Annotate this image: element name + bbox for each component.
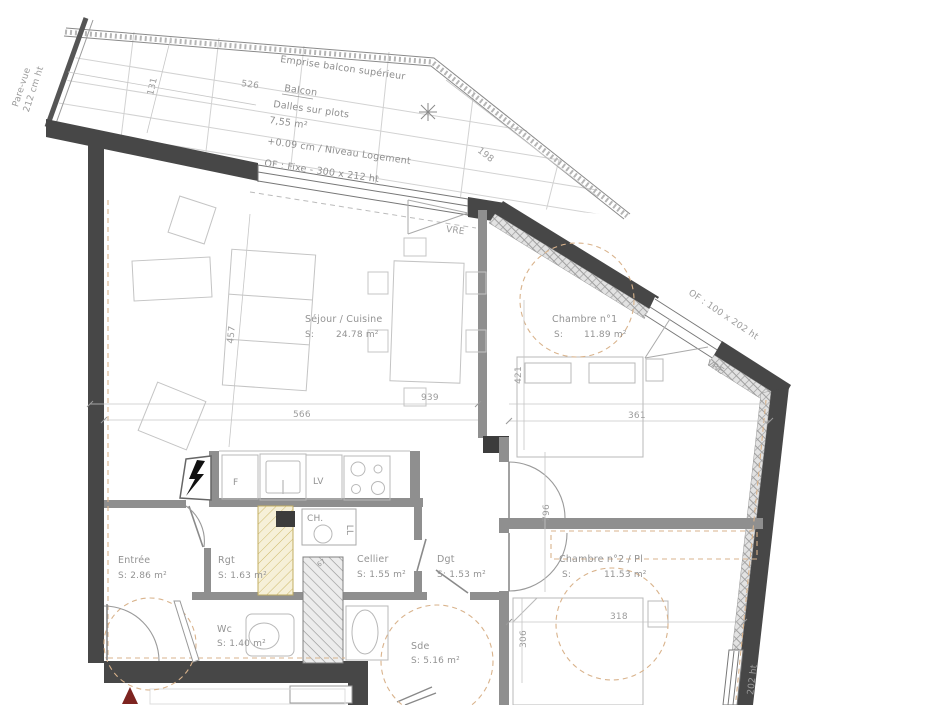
wall-corridor-1 xyxy=(499,437,509,462)
cooktop xyxy=(344,456,390,500)
dining-set xyxy=(368,238,486,406)
dim-306: 306 xyxy=(519,630,529,648)
label-rgt-area: S: 1.63 m² xyxy=(218,571,267,581)
dashed-marks xyxy=(104,200,766,705)
wall-left xyxy=(88,136,104,663)
wall-diagonal-upper xyxy=(495,201,659,310)
wall-cellier-dgt-1 xyxy=(414,507,422,540)
door-chambre1-arc xyxy=(509,462,565,518)
label-sejour-s: S: xyxy=(305,330,314,340)
floor-plan: Emprise balcon supérieur 526 Balcon Dall… xyxy=(0,0,940,705)
label-water-heater: CH. xyxy=(307,514,323,524)
bed-chambre2 xyxy=(513,598,668,705)
dim-318: 318 xyxy=(610,612,628,622)
dim-457: 457 xyxy=(226,325,238,344)
label-entree-area: S: 2.86 m² xyxy=(118,571,167,581)
floor-plan-svg: Emprise balcon supérieur 526 Balcon Dall… xyxy=(0,0,940,705)
shaft-block xyxy=(276,511,295,527)
label-sejour-area: 24.78 m² xyxy=(336,330,379,340)
label-chambre2-name: Chambre n°2 / Pl xyxy=(559,554,643,565)
label-dishwasher: LV xyxy=(313,477,324,487)
wall-corridor-2 xyxy=(499,518,509,533)
label-sde-name: Sde xyxy=(411,641,430,652)
exterior-walls: 202 ht OF : 100 x 202 ht VRE xyxy=(46,119,791,705)
shaft-gray xyxy=(303,557,343,663)
label-dgt-name: Dgt xyxy=(437,554,455,565)
bed-chambre1 xyxy=(517,357,663,457)
toilet-unit xyxy=(246,614,294,656)
entry-marker xyxy=(122,687,138,704)
label-chambre2-area: 11.53 m² xyxy=(604,570,647,580)
circle-sde xyxy=(381,605,493,705)
wall-sejour-chambre1 xyxy=(478,210,487,438)
wall-sejour-entree xyxy=(104,500,186,508)
dim-526: 526 xyxy=(241,79,260,91)
circle-chambre2 xyxy=(556,568,668,680)
dim-421: 421 xyxy=(514,366,524,384)
label-wc-area: S: 1.40 m² xyxy=(217,639,266,649)
basin xyxy=(352,610,378,654)
label-sejour-name: Séjour / Cuisine xyxy=(305,314,382,325)
electrical-panel xyxy=(180,456,211,500)
label-rgt-name: Rgt xyxy=(218,555,235,566)
label-chambre1-area: 11.89 m² xyxy=(584,330,627,340)
fridge xyxy=(222,455,258,499)
nightstand xyxy=(648,601,668,627)
wall-sde-top-1 xyxy=(343,592,427,600)
armchair-1 xyxy=(168,196,216,244)
armchair-2 xyxy=(138,382,206,450)
door-sejour-entree-leaf xyxy=(189,506,203,547)
label-balcon-area: 7,55 m² xyxy=(269,115,309,131)
cellier-appliances: CH. LL xyxy=(302,509,356,545)
label-sde-area: S: 5.16 m² xyxy=(411,656,460,666)
nightstand xyxy=(646,359,663,381)
coffee-table xyxy=(132,257,212,301)
shower-mark-1 xyxy=(397,687,432,702)
label-chambre1-s: S: xyxy=(554,330,563,340)
chair xyxy=(404,238,426,256)
chair xyxy=(368,272,388,294)
label-dgt-area: S: 1.53 m² xyxy=(437,570,486,580)
door-wc-leaf xyxy=(174,601,199,662)
label-fridge: F xyxy=(233,478,238,488)
dim-939: 939 xyxy=(421,393,439,403)
dim-566: 566 xyxy=(293,410,311,420)
label-vre-top: VRE xyxy=(445,225,465,238)
dim-796: 796 xyxy=(542,504,552,522)
star-symbol xyxy=(419,103,437,121)
dishwasher xyxy=(306,455,342,499)
label-cellier-name: Cellier xyxy=(357,554,389,565)
label-balcon: Balcon xyxy=(284,83,318,99)
door-entree-arc xyxy=(104,606,159,661)
dim-361: 361 xyxy=(628,411,646,421)
wall-top xyxy=(46,119,258,181)
wall-corridor-3 xyxy=(499,591,509,705)
wall-entree-rgt xyxy=(204,548,211,598)
door-cellier-leaf xyxy=(417,539,426,571)
wall-sde-top-2 xyxy=(470,592,500,600)
wall-kitchen-right xyxy=(410,451,420,501)
label-wc-name: Wc xyxy=(217,624,232,635)
label-washer: LL xyxy=(344,525,354,535)
label-chambre2-s: S: xyxy=(562,570,571,580)
label-entree-name: Entrée xyxy=(118,555,150,566)
shower-mark-2 xyxy=(405,693,436,705)
insulation-diagonal-upper xyxy=(489,214,651,319)
dining-table xyxy=(390,261,464,383)
label-chambre1-name: Chambre n°1 xyxy=(552,314,617,325)
label-cellier-area: S: 1.55 m² xyxy=(357,570,406,580)
